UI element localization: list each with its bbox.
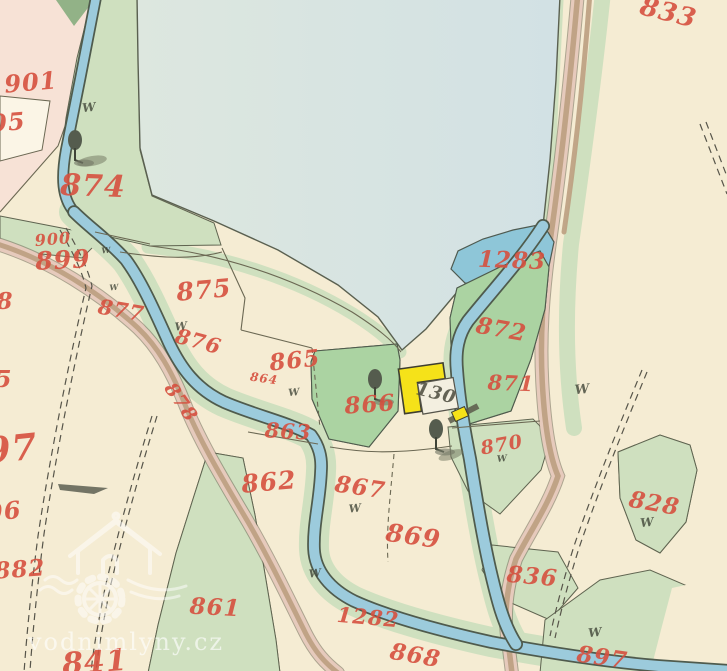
parcel-label-861: 861 <box>188 593 241 623</box>
meadow-mark: W <box>497 454 509 465</box>
parcel-label-874: 874 <box>59 168 127 205</box>
watermark-text: vodnimlyny.cz <box>27 628 224 656</box>
cadastral-map: 8339010587490089987787587687886586486686… <box>0 0 727 671</box>
parcel-label-862: 862 <box>239 465 298 499</box>
parcel-label-866: 866 <box>343 389 397 420</box>
parcel-label-836: 836 <box>505 561 559 592</box>
parcel-label-97: 97 <box>0 425 40 472</box>
parcel-label-05: 05 <box>0 106 27 138</box>
parcel-label-901: 901 <box>3 65 58 99</box>
parcel-label-882: 882 <box>0 554 46 585</box>
parcel-label-899: 899 <box>34 244 92 276</box>
parcel-label-8: 8 <box>0 288 14 315</box>
parcel-label-96: 96 <box>0 495 23 528</box>
parcel-label-863: 863 <box>263 417 312 444</box>
parcel-label-871: 871 <box>486 370 535 397</box>
parcel-label-865: 865 <box>267 344 322 376</box>
parcel-label-1283: 1283 <box>478 246 547 275</box>
parcel-label-5: 5 <box>0 366 13 393</box>
parcel-label-875: 875 <box>174 273 233 307</box>
map-viewport[interactable]: 8339010587490089987787587687886586486686… <box>0 0 727 671</box>
